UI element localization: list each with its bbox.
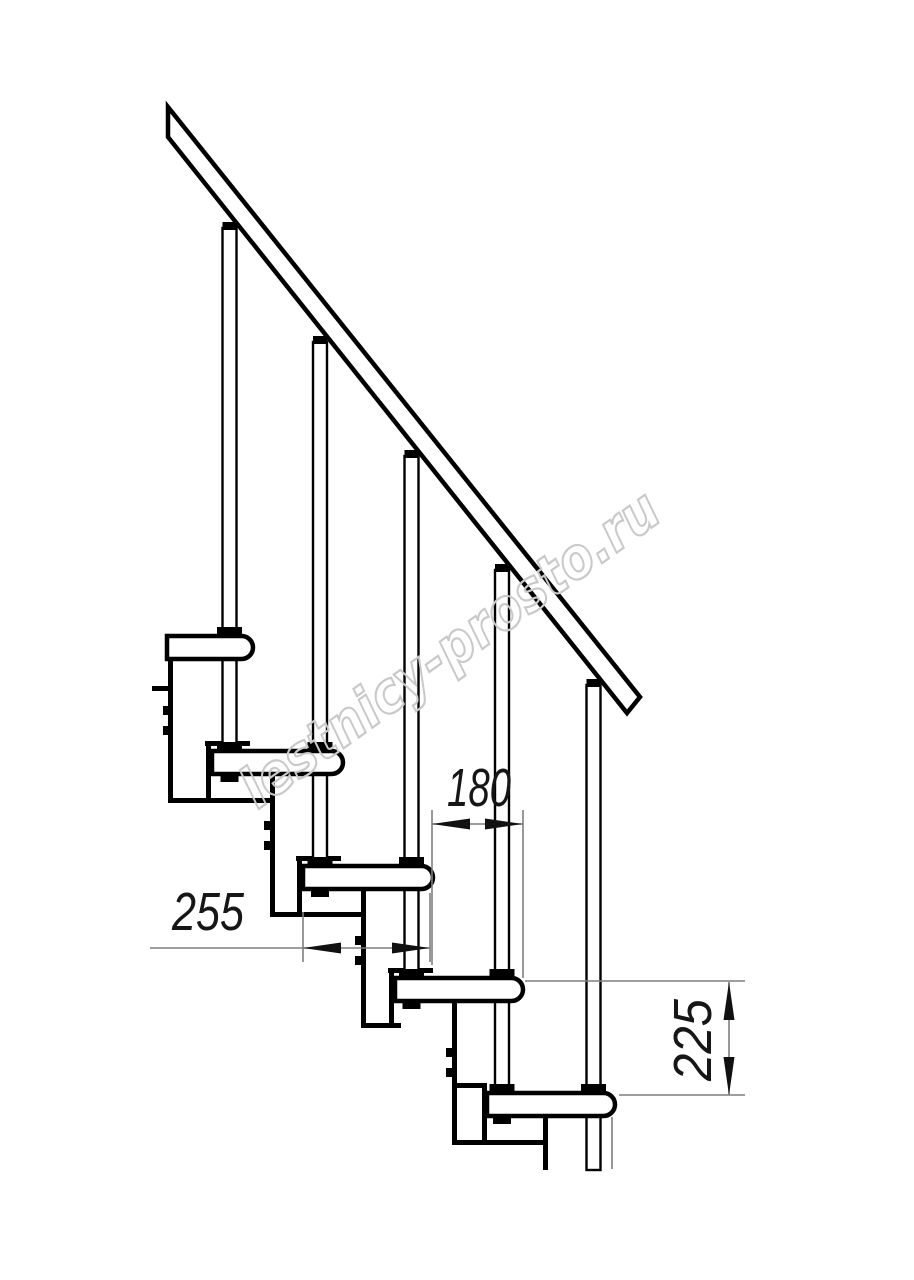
technical-drawing: 180 255 225 lestnicy-prosto.ru [0,0,914,1280]
dimension-label-180: 180 [447,758,511,818]
drawing-page: 180 255 225 lestnicy-prosto.ru [0,0,914,1280]
dimension-label-255: 255 [171,882,245,942]
dimension-label-225: 225 [663,998,723,1082]
